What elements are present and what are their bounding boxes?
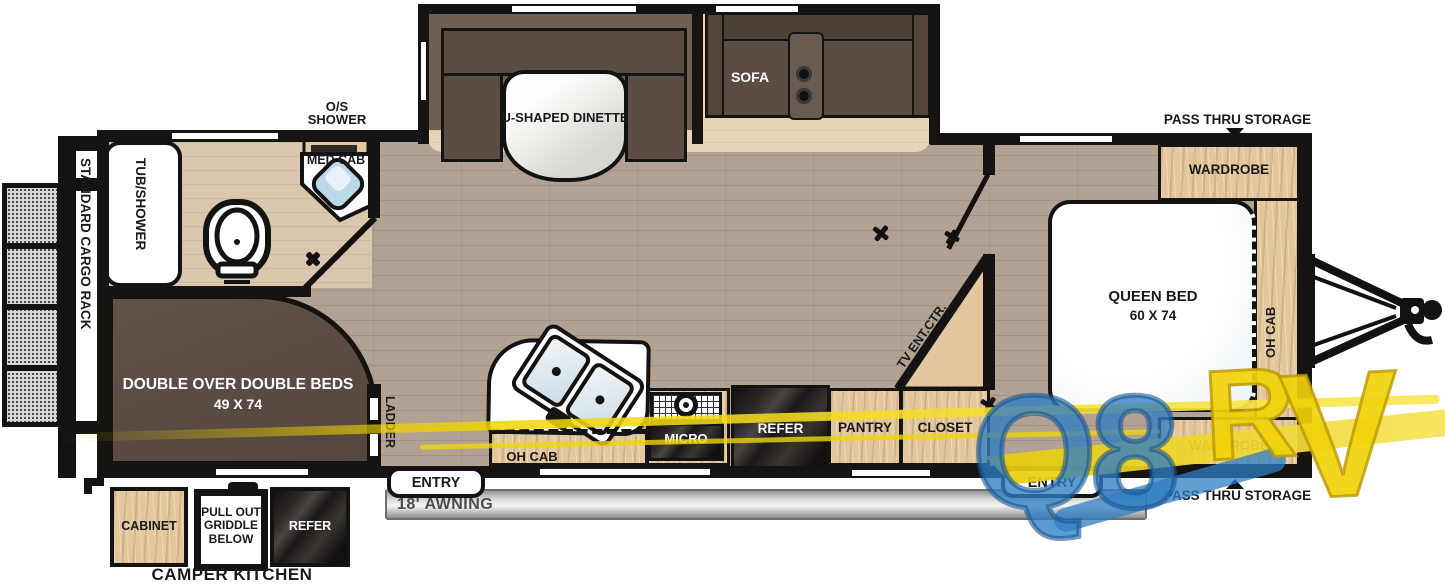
entry-door-left: ENTRY: [387, 467, 485, 498]
sofa-cupholder-1: [796, 66, 812, 82]
slide-wall-top: [418, 4, 940, 14]
kitchen-ohcab-label: OH CAB: [492, 449, 572, 464]
refer-label: REFER: [731, 421, 830, 436]
sofa-label: SOFA: [718, 69, 782, 85]
med-cab-label: MED CAB: [301, 153, 371, 167]
camper-refer-label: REFER: [270, 519, 350, 533]
entry-door-right: ENTRY: [1001, 467, 1103, 498]
tub-shower-label: TUB/SHOWER: [133, 158, 148, 273]
pass-thru-top-label: PASS THRU STORAGE: [1150, 112, 1325, 127]
entry-left-label: ENTRY: [412, 475, 461, 491]
window-bottom-3: [852, 470, 930, 476]
window-slide-1: [512, 6, 636, 12]
pantry-label: PANTRY: [828, 420, 902, 435]
window-bath: [172, 133, 278, 139]
stabilizer-jack-icon2: [84, 478, 92, 494]
hitch-icon: [1308, 240, 1445, 385]
sofa-cupholder-2: [796, 88, 812, 104]
sofa-armrest-right: [912, 15, 928, 115]
pass-thru-bottom-arrow: [1226, 479, 1244, 489]
awning-label: 18' AWNING: [397, 496, 493, 514]
ladder-rung-1: [370, 398, 378, 420]
closet-label: CLOSET: [900, 420, 990, 435]
bath-wall-vertical: [368, 130, 380, 218]
pass-thru-top-arrow: [1226, 128, 1244, 138]
sofa-armrest-left: [708, 15, 724, 115]
slide-divider-wall: [692, 4, 703, 144]
wall-right: [1298, 133, 1312, 478]
wall-left: [97, 130, 109, 478]
queen-bed: [1048, 200, 1256, 412]
ladder-rung-2: [370, 434, 378, 456]
tv-vertical-wall: [983, 254, 995, 390]
wardrobe-bottom-label: WARDROBE: [1158, 438, 1300, 453]
cargo-rack-arm-top: [58, 136, 100, 151]
dinette-table: [502, 70, 628, 182]
cargo-rack-label: STANDARD CARGO RACK: [78, 158, 93, 468]
bath-bunk-wall: [97, 286, 311, 297]
micro-label: MICRO: [648, 431, 724, 446]
ladder-label: LADDER: [383, 396, 397, 468]
bunk-size-label: 49 X 74: [118, 396, 358, 412]
wardrobe-top-label: WARDROBE: [1158, 162, 1300, 177]
camper-griddle-clamp-icon: [228, 482, 258, 495]
window-bedroom-top: [1020, 136, 1112, 142]
queen-bed-size-label: 60 X 74: [1058, 308, 1248, 323]
camper-kitchen-title: CAMPER KITCHEN: [110, 565, 354, 585]
window-slide-2: [716, 6, 798, 12]
kitchen-counter-dashline: [490, 429, 646, 434]
cargo-rack-divider-3: [2, 365, 62, 371]
bunk-label: DOUBLE OVER DOUBLE BEDS: [118, 376, 358, 394]
cargo-rack-divider-1: [2, 243, 62, 249]
bedroom-stub-wall: [983, 133, 995, 175]
dinette-label: U-SHAPED DINETTE: [500, 110, 630, 125]
cargo-rack-divider-2: [2, 304, 62, 310]
queen-bed-label: QUEEN BED: [1058, 288, 1248, 305]
window-bottom-1: [216, 469, 308, 475]
slide-wall-right: [929, 4, 940, 144]
tv-ent-center: [894, 252, 994, 392]
window-slide-left: [421, 42, 426, 100]
entry-right-label: ENTRY: [1028, 475, 1077, 491]
os-shower-label-line2: SHOWER: [298, 113, 376, 126]
window-bottom-2: [540, 469, 710, 475]
cooktop-burner-dot: [683, 402, 689, 408]
camper-cabinet-label: CABINET: [110, 519, 188, 533]
dinette-bench-top: [441, 28, 687, 76]
camper-griddle-label: PULL OUT GRIDDLE BELOW: [198, 506, 264, 546]
toilet-icon: [200, 198, 274, 286]
bedroom-ohcab-label: OH CAB: [1263, 258, 1278, 358]
rv-floorplan: U-SHAPED DINETTE SOFA TUB/SHOWER MED CAB…: [0, 0, 1445, 587]
pass-thru-bottom-label: PASS THRU STORAGE: [1150, 488, 1325, 503]
